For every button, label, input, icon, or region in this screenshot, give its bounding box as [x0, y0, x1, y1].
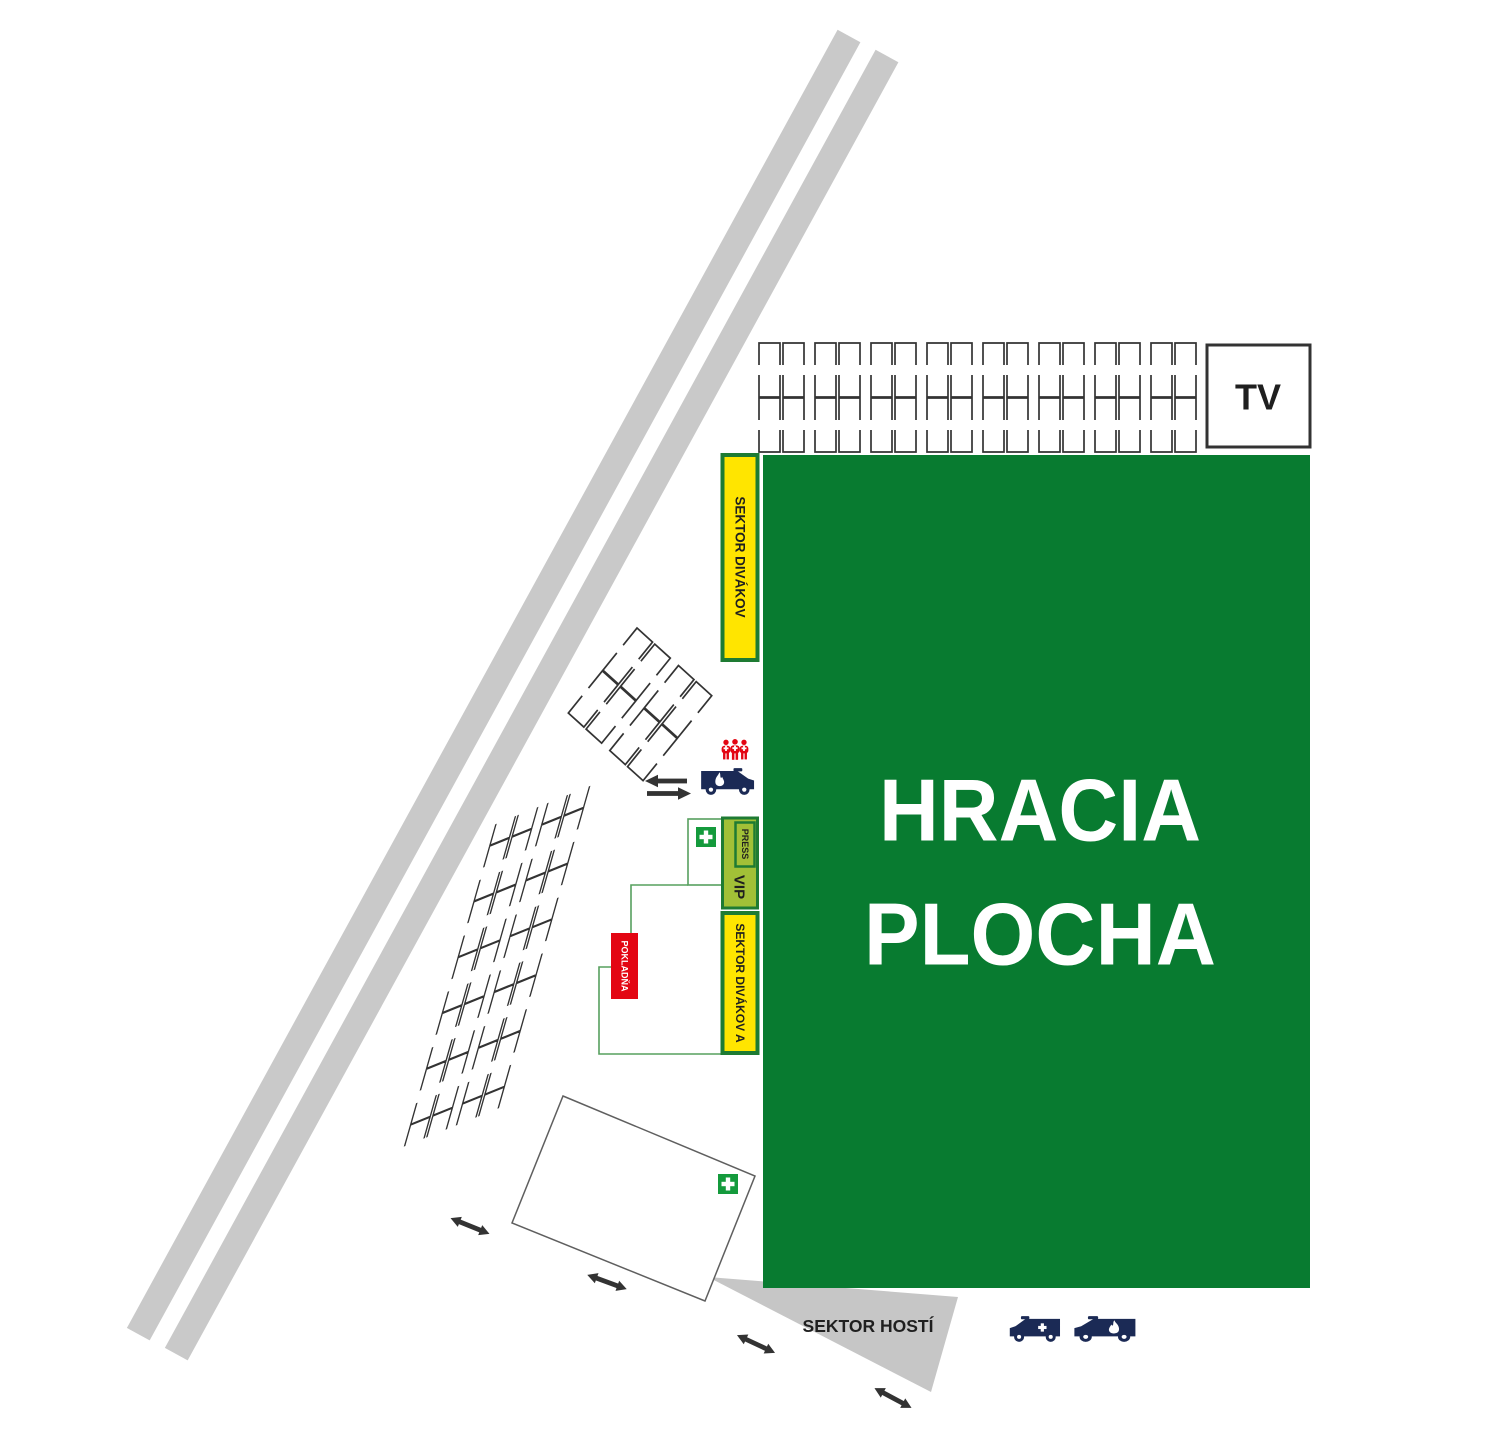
parking-grid-lower [405, 786, 590, 1146]
vip-label: VIP [731, 875, 748, 899]
queue-path-upper [631, 885, 688, 933]
two-way-arrow-icon-4 [872, 1383, 914, 1412]
first-aid-icon-south [718, 1174, 738, 1194]
two-way-arrow-icon-2 [585, 1270, 628, 1295]
fire-truck-icon-gate [701, 768, 754, 795]
medic-crowd-icon [722, 739, 749, 760]
gate-arrows [645, 775, 691, 800]
tv-label: TV [1235, 377, 1281, 418]
parking-grid-upper [568, 628, 711, 781]
two-way-arrow-icon-1 [449, 1213, 492, 1239]
fire-truck-icon-south [1074, 1316, 1135, 1342]
playing-field [763, 455, 1310, 1288]
guest-sector-label: SEKTOR HOSTÍ [803, 1315, 935, 1336]
parking-spaces [405, 786, 590, 1146]
spectator-sector-label: SEKTOR DIVÁKOV [733, 496, 748, 617]
parking-spaces [759, 343, 1196, 452]
ticket-office-label: POKLADŇA [620, 941, 631, 992]
parking-spaces [568, 628, 711, 781]
two-way-arrow-icon-3 [735, 1330, 778, 1358]
stadium-map: HRACIA PLOCHA TV SEKTOR DIVÁKOV PRESS VI… [0, 0, 1500, 1456]
playing-field-label-line1: HRACIA [879, 761, 1201, 860]
spectator-sector-a-label: SEKTOR DIVÁKOV A [733, 923, 748, 1043]
press-label: PRESS [740, 829, 750, 860]
left-arrow-icon [645, 775, 687, 787]
playing-field-label-line2: PLOCHA [864, 885, 1216, 984]
ambulance-icon [1010, 1316, 1060, 1342]
stadium-site-plan: HRACIA PLOCHA TV SEKTOR DIVÁKOV PRESS VI… [0, 0, 1500, 1456]
road-stripe-outer [127, 30, 861, 1341]
first-aid-icon-gate [696, 827, 716, 847]
building-outline [512, 1096, 755, 1301]
right-arrow-icon [647, 787, 691, 799]
parking-grid-top [759, 343, 1196, 452]
